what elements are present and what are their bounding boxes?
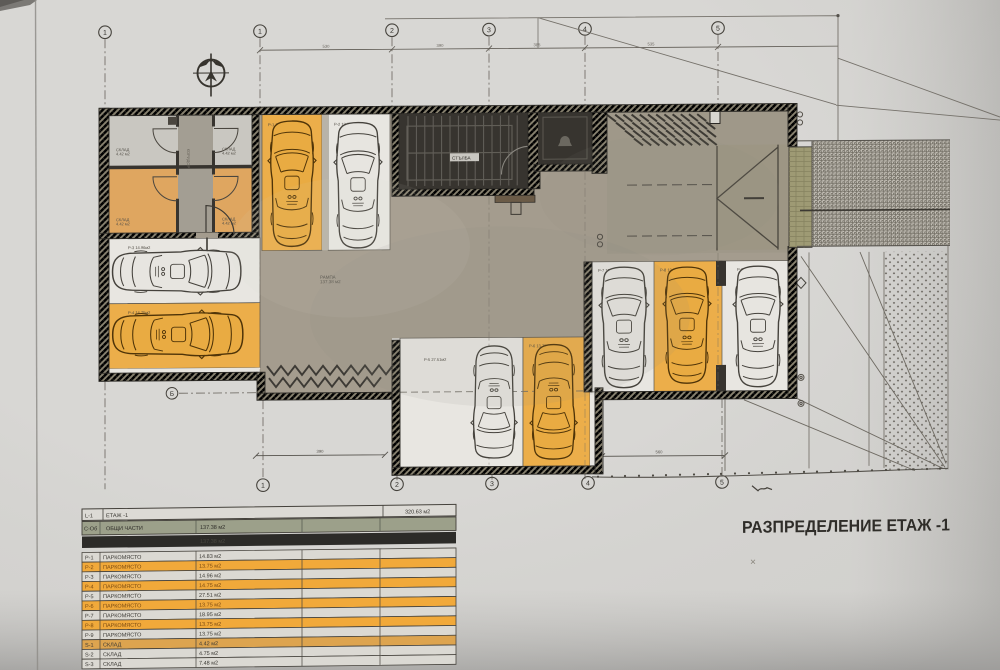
svg-text:ПАРКОМЯСТО: ПАРКОМЯСТО [103, 564, 142, 570]
svg-text:L-1: L-1 [85, 513, 93, 519]
svg-text:ПАРКОМЯСТО: ПАРКОМЯСТО [103, 594, 142, 600]
svg-text:ПАРКОМЯСТО: ПАРКОМЯСТО [103, 574, 142, 580]
svg-text:ПАРКОМЯСТО: ПАРКОМЯСТО [103, 555, 142, 561]
svg-text:СТЪЛБА: СТЪЛБА [452, 156, 472, 161]
svg-text:13.75 м2: 13.75 м2 [199, 563, 221, 569]
svg-text:5: 5 [720, 480, 724, 487]
svg-text:Р-5: Р-5 [85, 594, 94, 600]
svg-text:Р-4: Р-4 [85, 584, 94, 590]
svg-text:ПАРКОМЯСТО: ПАРКОМЯСТО [103, 603, 142, 609]
svg-text:СКЛАД4.42 м2: СКЛАД4.42 м2 [116, 217, 131, 226]
svg-text:С-Об: С-Об [84, 525, 97, 532]
svg-text:Р-8: Р-8 [85, 623, 94, 629]
svg-text:27.51 м2: 27.51 м2 [199, 593, 221, 599]
svg-text:ПАРКОМЯСТО: ПАРКОМЯСТО [103, 584, 142, 590]
svg-text:S-3: S-3 [85, 662, 94, 668]
svg-text:385: 385 [534, 42, 542, 47]
svg-text:14.83 м2: 14.83 м2 [199, 554, 221, 560]
svg-text:ПАРКОМЯСТО: ПАРКОМЯСТО [103, 623, 142, 629]
svg-text:ПАРКОМЯСТО: ПАРКОМЯСТО [103, 632, 142, 638]
svg-text:1: 1 [261, 483, 265, 490]
svg-text:4.75 м2: 4.75 м2 [199, 651, 218, 657]
svg-text:СКЛАД4.42 м2: СКЛАД4.42 м2 [222, 146, 237, 155]
svg-text:ЕТАЖ -1: ЕТАЖ -1 [106, 513, 128, 519]
svg-text:Р-9: Р-9 [85, 633, 94, 639]
svg-text:Р-7: Р-7 [85, 614, 94, 620]
svg-text:530: 530 [323, 44, 331, 49]
svg-text:560: 560 [656, 449, 664, 454]
svg-text:2: 2 [390, 28, 394, 35]
svg-text:5: 5 [716, 26, 720, 33]
svg-text:Б: Б [170, 391, 174, 398]
svg-text:390: 390 [437, 43, 445, 48]
svg-text:КОРИДОР: КОРИДОР [186, 149, 191, 169]
svg-text:S-2: S-2 [85, 652, 94, 658]
svg-text:СКЛАД: СКЛАД [103, 662, 122, 668]
svg-text:1: 1 [258, 29, 262, 36]
svg-text:Р-3: Р-3 [85, 575, 94, 581]
svg-text:РАЗПРЕДЕЛЕНИЕ ЕТАЖ -1: РАЗПРЕДЕЛЕНИЕ ЕТАЖ -1 [742, 515, 950, 537]
svg-text:18.95 м2: 18.95 м2 [199, 612, 221, 618]
svg-text:Р-3 14.96м2: Р-3 14.96м2 [128, 245, 151, 250]
svg-text:137.38 м2: 137.38 м2 [200, 539, 225, 545]
svg-text:СКЛАД4.42 м2: СКЛАД4.42 м2 [116, 147, 131, 156]
svg-text:4.42 м2: 4.42 м2 [199, 641, 218, 647]
svg-text:1: 1 [103, 30, 107, 37]
svg-text:14.75 м2: 14.75 м2 [199, 583, 221, 589]
svg-text:13.75 м2: 13.75 м2 [199, 602, 221, 608]
svg-text:3: 3 [487, 27, 491, 34]
svg-text:СКЛАД: СКЛАД [103, 642, 122, 648]
svg-text:Р-2: Р-2 [85, 565, 94, 571]
svg-text:13.75 м2: 13.75 м2 [199, 631, 221, 637]
svg-text:Р-6: Р-6 [85, 604, 94, 610]
svg-text:4: 4 [586, 480, 590, 487]
svg-text:7.48 м2: 7.48 м2 [199, 661, 218, 667]
svg-text:535: 535 [648, 41, 656, 46]
svg-text:137.38 м2: 137.38 м2 [200, 525, 225, 531]
svg-text:320.63 м2: 320.63 м2 [405, 509, 430, 515]
svg-text:13.75 м2: 13.75 м2 [199, 622, 221, 628]
svg-text:3: 3 [490, 481, 494, 488]
svg-text:ПАРКОМЯСТО: ПАРКОМЯСТО [103, 613, 142, 619]
svg-text:ОБЩИ ЧАСТИ: ОБЩИ ЧАСТИ [106, 526, 143, 532]
svg-text:2: 2 [395, 482, 399, 489]
svg-text:СКЛАД: СКЛАД [103, 652, 122, 658]
svg-text:Р-1: Р-1 [85, 555, 94, 561]
svg-text:4: 4 [583, 27, 587, 34]
svg-text:S-1: S-1 [85, 643, 94, 649]
svg-text:СКЛАД4.42 м2: СКЛАД4.42 м2 [222, 216, 237, 225]
svg-text:14.96 м2: 14.96 м2 [199, 573, 221, 579]
svg-text:390: 390 [317, 449, 325, 454]
